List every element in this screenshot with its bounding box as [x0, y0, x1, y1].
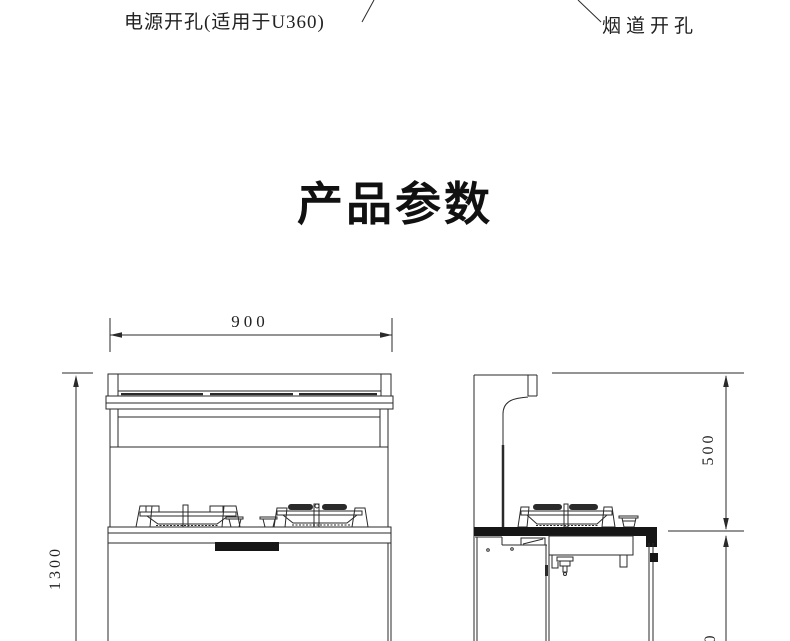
- arrow-up-icon: [73, 375, 79, 387]
- side-hinge-block: [650, 553, 658, 562]
- dimension-partial-digit: 0: [702, 633, 720, 641]
- arrow-up-icon: [723, 375, 729, 387]
- dimension-1300-lines: [62, 373, 93, 641]
- dimension-width-label: 900: [175, 312, 325, 332]
- countertop-slab: [474, 527, 657, 536]
- front-left-burner: [136, 505, 240, 527]
- dimension-height-label: 1300: [47, 546, 65, 590]
- flue-hole-leader-line: [578, 0, 601, 22]
- power-hole-leader-line: [362, 0, 374, 22]
- page-title: 产品参数: [0, 178, 790, 230]
- arrow-right-icon: [380, 332, 392, 338]
- product-parameters-diagram: 电源开孔(适用于U360) 烟道开孔 产品参数 900 1300 500 0: [0, 0, 790, 641]
- under-counter-assembly: [475, 536, 633, 576]
- technical-drawing-canvas: [0, 0, 790, 641]
- countertop-end-cap: [646, 536, 657, 547]
- dimension-bottom-lines: [723, 535, 729, 641]
- dimension-hood-height-label: 500: [700, 433, 718, 466]
- arrow-down-icon: [723, 518, 729, 530]
- front-view-drawing: [106, 374, 393, 641]
- side-view-drawing: [474, 375, 658, 641]
- flue-hole-annotation: 烟道开孔: [602, 11, 698, 38]
- arrow-up-icon: [723, 535, 729, 547]
- front-condiment-cups: [226, 517, 277, 527]
- drawer-handle: [215, 542, 279, 551]
- glass-edge-band: [121, 393, 377, 395]
- arrow-left-icon: [110, 332, 122, 338]
- side-burner: [518, 504, 638, 527]
- gas-valve: [557, 557, 573, 576]
- front-right-burner: [274, 504, 368, 527]
- power-hole-annotation: 电源开孔(适用于U360): [124, 7, 325, 34]
